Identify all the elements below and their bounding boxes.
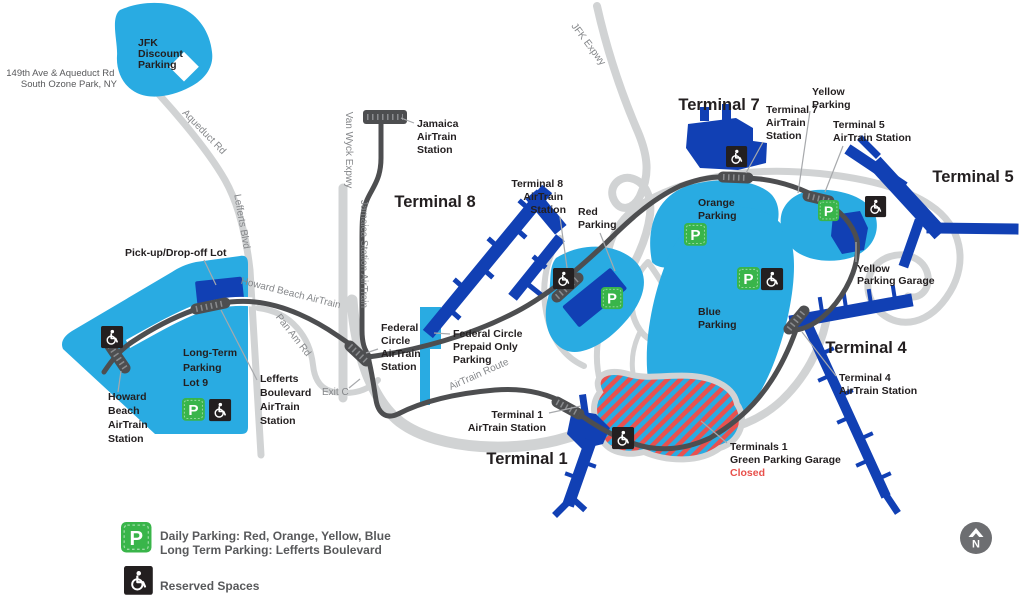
terminal4-title: Terminal 4 (825, 339, 907, 357)
jamaica-station-airtrain-label: Jamaica Station AirTrain (358, 200, 369, 308)
address-label: 149th Ave & Aqueduct Rd South Ozone Park… (6, 68, 117, 90)
lefferts-station-label: Lefferts Boulevard AirTrain Station (260, 373, 314, 427)
terminal7-title: Terminal 7 (678, 96, 759, 114)
reserved-spaces-icon-blue (761, 268, 783, 290)
parking-icon-lot9 (182, 398, 205, 421)
reserved-spaces-icon-terminal7 (726, 146, 747, 167)
parking-icon-red (601, 287, 623, 309)
legend-parking-icon (121, 522, 151, 552)
jfk-airport-parking-map: P (0, 0, 1024, 597)
legend-reserved-icon (124, 566, 153, 595)
pickup-dropoff-label: Pick-up/Drop-off Lot (125, 247, 227, 259)
terminal1-station-label: Terminal 1 AirTrain Station (468, 409, 546, 434)
legend-daily-parking: Daily Parking: Red, Orange, Yellow, Blue (160, 529, 391, 543)
legend-long-term-parking: Long Term Parking: Lefferts Boulevard (160, 543, 382, 557)
legend-reserved-spaces: Reserved Spaces (160, 579, 260, 593)
jamaica-station-bar (363, 110, 407, 124)
terminal4-station-label: Terminal 4 AirTrain Station (839, 372, 917, 397)
map-canvas: P (0, 0, 1024, 597)
orange-parking-label: Orange Parking (698, 197, 738, 222)
terminal5-station-label: Terminal 5 AirTrain Station (833, 119, 911, 144)
reserved-spaces-icon-terminal8 (553, 268, 574, 289)
legend: Daily Parking: Red, Orange, Yellow, Blue… (121, 522, 391, 595)
exit-c-label: Exit C (322, 387, 349, 398)
parking-icon-orange (684, 223, 707, 246)
federal-prepaid-label: Federal Circle Prepaid Only Parking (453, 328, 525, 366)
reserved-spaces-icon-lot9 (209, 399, 231, 421)
reserved-spaces-icon-terminal5 (865, 196, 886, 217)
terminal7-station-label: Terminal 7 AirTrain Station (766, 104, 821, 142)
terminal5-title: Terminal 5 (932, 168, 1013, 186)
lefferts-blvd-label: Lefferts Blvd (231, 193, 251, 249)
van-wyck-label: Van Wyck Expwy (343, 112, 354, 188)
reserved-spaces-icon-terminal1 (612, 427, 634, 449)
reserved-spaces-icon-howard (101, 326, 123, 348)
terminal8-station-label: Terminal 8 AirTrain Station (511, 178, 566, 216)
terminal1-title: Terminal 1 (486, 450, 567, 468)
federal-circle-station-label: Federal Circle AirTrain Station (381, 322, 424, 373)
compass-letter: N (972, 539, 980, 551)
compass-north-indicator: N (960, 522, 992, 554)
terminal8-title: Terminal 8 (394, 193, 475, 211)
jamaica-station-label: Jamaica AirTrain Station (417, 118, 461, 156)
parking-icon-blue (737, 267, 760, 290)
terminals1-green-garage-label: Terminals 1 Green Parking Garage Closed (730, 441, 844, 479)
red-parking-label: Red Parking (578, 206, 617, 231)
parking-icon-yellow (818, 200, 839, 221)
